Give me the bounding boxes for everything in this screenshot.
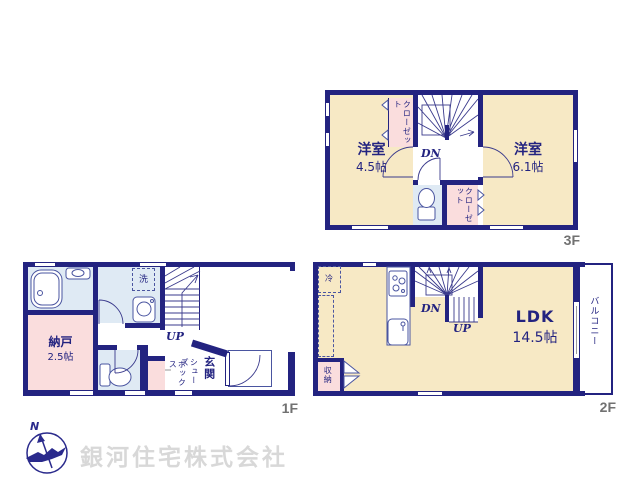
window-3f-bottom-2 (490, 225, 523, 230)
window-1f-bottom-2 (125, 390, 145, 396)
window-3f-right (573, 130, 578, 162)
wall-1f-top-endcap (290, 262, 295, 271)
balcony-label-2f: バルコニー (588, 296, 598, 360)
closet-label-3f-top: クローゼット (393, 100, 411, 145)
compass-north-label: N (30, 421, 39, 434)
laundry-label-1f: 洗 (139, 275, 148, 285)
fixtures-1f-layer (28, 267, 290, 390)
shoebox-label-line2: ボックス (168, 360, 186, 394)
room-size-2f-ldk: 14.5帖 (498, 330, 572, 346)
floorplan-canvas: 洋室 4.5帖 洋室 6.1帖 クローゼット クローゼット DN 3F (0, 0, 640, 480)
wall-2f-bottom (313, 391, 585, 396)
stairs-dn-3f: DN (421, 148, 441, 161)
room-label-1f-storage: 納戸 (28, 336, 93, 350)
storage-label-2f: 収納 (323, 366, 332, 388)
window-1f-bottom-1 (70, 390, 93, 396)
room-size-1f-storage: 2.5帖 (28, 352, 93, 364)
entrance-label-1f: 玄関 (202, 356, 215, 384)
stairs-up-1f: UP (166, 331, 184, 344)
stairs-dn-2f: DN (421, 303, 441, 316)
room-label-3f-west-right: 洋室 (483, 142, 573, 158)
window-3f-bottom-1 (352, 225, 388, 230)
sliding-door-2f-track (576, 306, 577, 354)
window-2f-bottom (418, 391, 442, 396)
floor-label-1f: 1F (274, 400, 298, 416)
stairs-up-2f: UP (453, 323, 471, 336)
room-size-3f-west-left: 4.5帖 (330, 161, 413, 175)
wall-1f-bottom (23, 390, 295, 396)
room-size-3f-west-right: 6.1帖 (483, 161, 573, 175)
fixtures-2f-layer (318, 267, 573, 391)
floor-label-3f: 3F (556, 232, 580, 248)
room-label-2f-ldk: LDK (503, 308, 567, 326)
closet-label-3f-bottom: クローゼット (455, 187, 473, 224)
compass-icon (18, 422, 74, 478)
company-watermark: 銀河住宅株式会社 (80, 438, 288, 472)
floor-label-2f: 2F (592, 399, 616, 415)
fridge-label-2f: 冷 (325, 274, 333, 283)
